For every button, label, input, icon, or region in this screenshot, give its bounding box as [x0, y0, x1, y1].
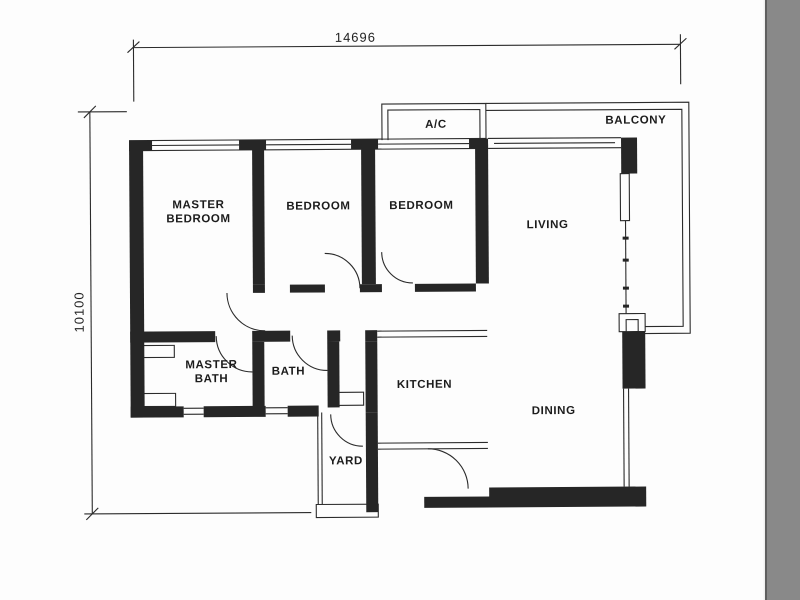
- yard-left-wall: [318, 412, 323, 512]
- floor-plan-drawing: [0, 0, 800, 600]
- room-label-yard: YARD: [329, 454, 363, 468]
- room-label-bath: BATH: [272, 365, 306, 379]
- balcony-outline: [486, 102, 690, 334]
- floor-plan: 14696 10100 MASTER BEDROOM BEDROOM BEDRO…: [0, 0, 800, 600]
- room-label-dining: DINING: [532, 404, 576, 418]
- living-window-band: [488, 138, 621, 149]
- solid-walls: [129, 138, 646, 514]
- dimension-label-height: 10100: [71, 291, 86, 332]
- scan-edge-band: [765, 0, 800, 600]
- room-label-master-bedroom-line1: MASTER: [172, 199, 224, 211]
- room-label-ac: A/C: [425, 118, 447, 132]
- room-label-master-bedroom: MASTER BEDROOM: [166, 198, 230, 226]
- top-wall-windows: [129, 138, 486, 150]
- room-label-balcony: BALCONY: [605, 113, 666, 127]
- room-label-master-bath-line1: MASTER: [185, 359, 237, 371]
- dimension-lines: [77, 34, 689, 520]
- scanned-floor-plan-page: 14696 10100 MASTER BEDROOM BEDROOM BEDRO…: [0, 0, 800, 600]
- room-label-master-bedroom-line2: BEDROOM: [166, 213, 230, 225]
- room-label-living: LIVING: [527, 218, 569, 232]
- dimension-label-width: 14696: [335, 30, 376, 45]
- room-label-kitchen: KITCHEN: [397, 378, 452, 392]
- room-label-master-bath-line2: BATH: [195, 373, 229, 385]
- room-label-master-bath: MASTER BATH: [185, 358, 237, 386]
- room-label-bedroom-1: BEDROOM: [286, 199, 350, 213]
- room-label-bedroom-2: BEDROOM: [389, 199, 453, 213]
